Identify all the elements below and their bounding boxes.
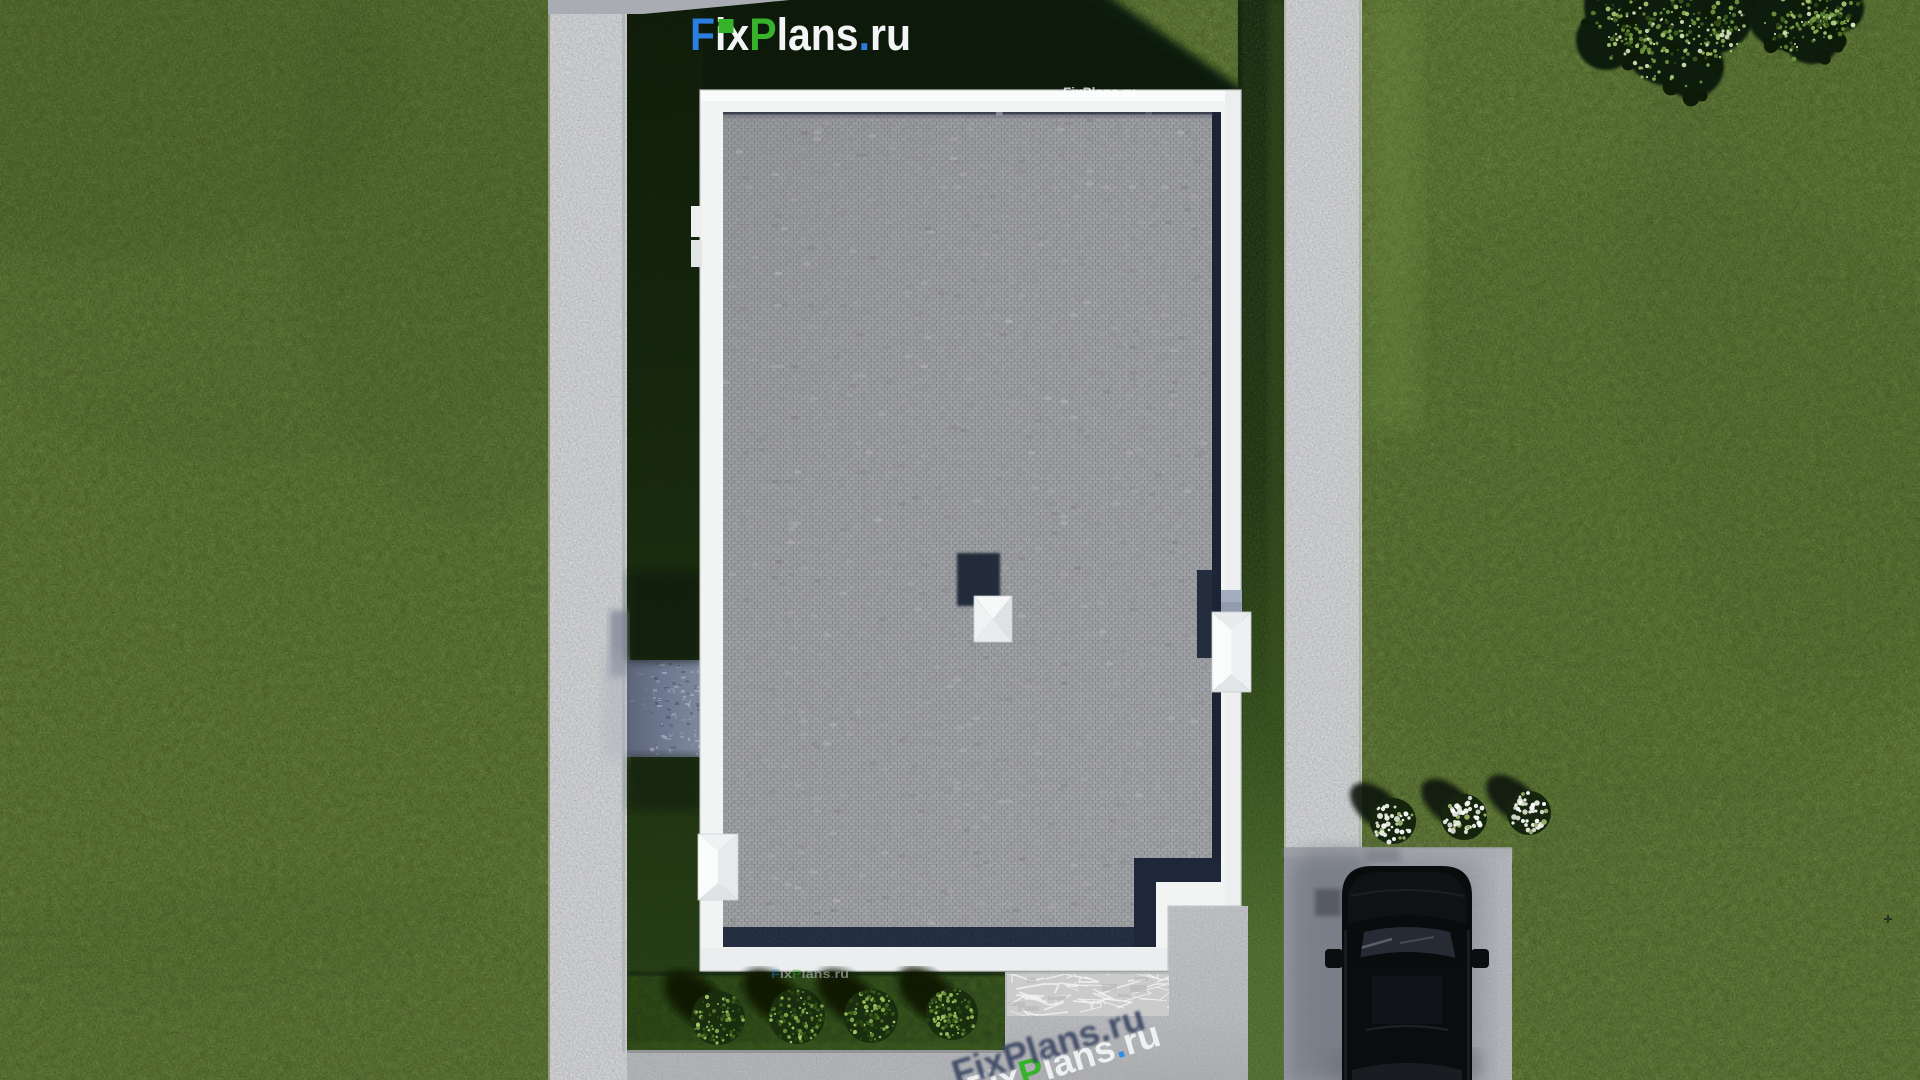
svg-text:FixPlans.ru: FixPlans.ru <box>771 967 849 981</box>
svg-text:FixPlans.ru: FixPlans.ru <box>690 9 911 60</box>
svg-text:FixPlans.ru: FixPlans.ru <box>1063 84 1136 100</box>
